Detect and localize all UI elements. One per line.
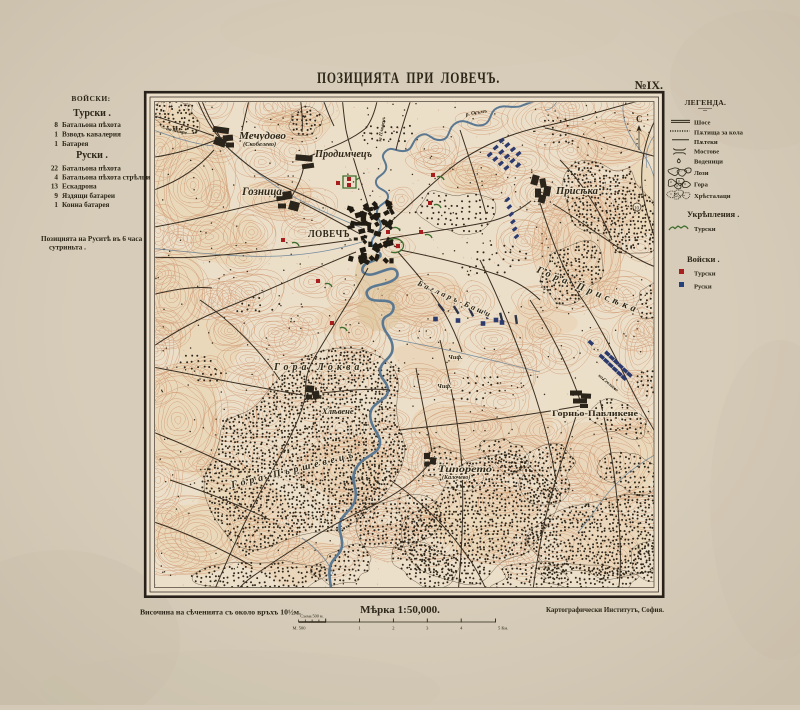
svg-text:Картографически Институтъ, Со: Картографически Институтъ, София. xyxy=(546,606,664,614)
svg-text:(Калочево): (Калочево) xyxy=(442,474,470,481)
svg-text:10: 10 xyxy=(634,207,640,212)
svg-text:1: 1 xyxy=(54,140,58,148)
svg-text:Гозница: Гозница xyxy=(241,186,282,198)
svg-text:Хрѣсталаци: Хрѣсталаци xyxy=(694,193,731,200)
svg-text:Шосе: Шосе xyxy=(694,120,711,127)
svg-text:Батальона пѣхота: Батальона пѣхота xyxy=(62,165,121,173)
svg-text:С: С xyxy=(636,114,643,124)
svg-text:1: 1 xyxy=(54,131,58,139)
svg-text:Пѫтеки: Пѫтеки xyxy=(694,139,718,146)
svg-text:Гора Локва: Гора Локва xyxy=(273,362,363,373)
svg-text:М. 500: М. 500 xyxy=(292,626,306,631)
svg-text:Укрѣпления .: Укрѣпления . xyxy=(687,209,739,219)
svg-text:Пѫтища за кола: Пѫтища за кола xyxy=(694,130,744,137)
svg-text:Взводъ кавалерия: Взводъ кавалерия xyxy=(62,131,121,139)
svg-text:№IX.: №IX. xyxy=(635,78,663,92)
svg-text:5 Км.: 5 Км. xyxy=(498,626,508,631)
svg-text:Турски: Турски xyxy=(694,271,716,278)
svg-text:Лози: Лози xyxy=(694,170,709,177)
svg-text:Продимчецъ: Продимчецъ xyxy=(314,148,372,160)
svg-text:13: 13 xyxy=(51,183,59,191)
svg-text:Мѣрка 1:50,000.: Мѣрка 1:50,000. xyxy=(360,604,440,616)
svg-text:1: 1 xyxy=(358,626,360,631)
svg-text:сутриньта .: сутриньта . xyxy=(49,244,86,252)
svg-text:Батальона пѣхота: Батальона пѣхота xyxy=(62,121,121,129)
svg-text:Схема 500 м.: Схема 500 м. xyxy=(300,614,323,619)
svg-text:ПОЗИЦИЯТА ПРИ ЛОВЕЧЪ.: ПОЗИЦИЯТА ПРИ ЛОВЕЧЪ. xyxy=(317,70,500,87)
svg-text:Позицията на Руситѣ въ 6 часа: Позицията на Руситѣ въ 6 часа xyxy=(41,235,143,243)
svg-text:ЛОВЕЧЪ: ЛОВЕЧЪ xyxy=(308,228,350,240)
svg-text:Войски .: Войски . xyxy=(687,254,720,264)
svg-text:Мостове: Мостове xyxy=(694,149,719,156)
svg-text:ЛЕГЕНДА.: ЛЕГЕНДА. xyxy=(685,98,727,107)
svg-text:Руски: Руски xyxy=(694,284,712,291)
svg-text:4: 4 xyxy=(54,174,58,182)
svg-text:9: 9 xyxy=(54,192,58,200)
svg-text:Типорето: Типорето xyxy=(438,464,493,474)
svg-text:8: 8 xyxy=(54,121,58,129)
svg-text:(Скобелево): (Скобелево) xyxy=(243,141,276,148)
svg-text:Турски .: Турски . xyxy=(73,108,111,119)
svg-text:Воденици: Воденици xyxy=(694,159,723,166)
svg-text:Руски .: Руски . xyxy=(76,150,108,161)
svg-text:Конна батарея: Конна батарея xyxy=(62,201,110,209)
svg-text:Батальона пѣхота стрѣлци: Батальона пѣхота стрѣлци xyxy=(62,174,150,182)
svg-text:Турски: Турски xyxy=(694,226,716,233)
svg-text:Ескадрона: Ескадрона xyxy=(62,183,97,191)
svg-text:Височина на сѣченията съ около: Височина на сѣченията съ около връхъ 10½… xyxy=(140,609,301,617)
svg-text:Присѣка: Присѣка xyxy=(555,186,598,197)
svg-text:1: 1 xyxy=(54,201,58,209)
svg-text:Чиф.: Чиф. xyxy=(437,383,452,390)
svg-text:Гора: Гора xyxy=(694,182,709,189)
svg-text:Яздящи батареи: Яздящи батареи xyxy=(62,192,115,200)
svg-text:ВОЙСКИ:: ВОЙСКИ: xyxy=(71,94,110,103)
svg-text:2: 2 xyxy=(392,626,394,631)
svg-text:Чиф.: Чиф. xyxy=(448,354,463,361)
svg-text:Батарея: Батарея xyxy=(62,140,89,148)
svg-text:Горньо-Павликене: Горньо-Павликене xyxy=(552,408,638,418)
svg-text:22: 22 xyxy=(51,165,59,173)
svg-text:Хлѣвене: Хлѣвене xyxy=(321,406,354,416)
